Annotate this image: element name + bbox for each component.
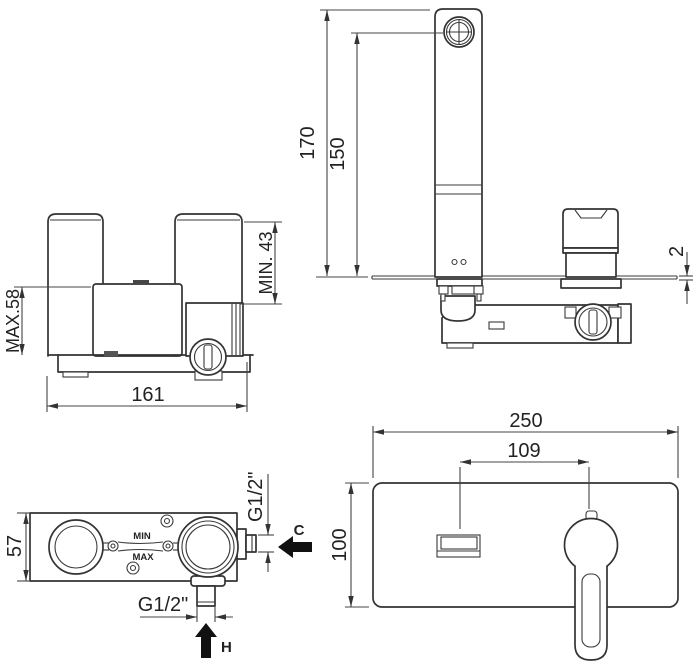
- wall-plate-front: [373, 483, 678, 607]
- dim-plate-height: 100: [329, 528, 351, 561]
- technical-drawing-sheet: MAX.58 MIN. 43 161: [0, 0, 696, 664]
- view-front: 250 109 100: [329, 410, 678, 660]
- dim-spout-to-handle: 109: [507, 440, 540, 462]
- dim-plate-width: 250: [509, 410, 542, 432]
- dim-total-height: 170: [297, 126, 319, 159]
- handle-side: [563, 209, 618, 248]
- view-rough-in-top: MIN MAX 57 G1/2" C G1/2" H: [4, 472, 312, 658]
- dim-body-depth: 57: [4, 535, 26, 557]
- cold-inlet-stub: [246, 535, 256, 552]
- left-valve-top-icon: [49, 520, 103, 574]
- spout-side: [435, 9, 482, 277]
- cartridge-port-icon: [575, 304, 611, 340]
- max-depth-mark: MAX: [132, 552, 154, 563]
- outlet-port-icon: [190, 339, 226, 375]
- min-depth-mark: MIN: [133, 531, 151, 542]
- hot-inlet-stub: [197, 586, 215, 606]
- dim-plate-thickness: 2: [666, 246, 688, 257]
- view-rough-in-front: MAX.58 MIN. 43 161: [3, 214, 282, 412]
- dim-hot-thread: G1/2": [138, 594, 188, 616]
- dim-body-width: 161: [131, 384, 164, 406]
- cold-water-arrow-icon: [278, 536, 312, 558]
- hot-water-arrow-icon: [195, 623, 217, 658]
- view-side: 170 150 2: [297, 9, 693, 348]
- cartridge-housing: [93, 284, 182, 356]
- right-valve-top-icon: [178, 517, 238, 577]
- dim-min-depth: MIN. 43: [256, 231, 276, 294]
- dim-aerator-height: 150: [327, 137, 349, 170]
- dim-max-depth: MAX.58: [3, 289, 23, 353]
- hot-water-label: H: [221, 639, 232, 656]
- dim-cold-thread: G1/2": [245, 472, 267, 522]
- cold-water-label: C: [294, 522, 305, 539]
- spout-clamp-bracket: [441, 296, 475, 321]
- drawing-canvas: MAX.58 MIN. 43 161: [0, 0, 696, 664]
